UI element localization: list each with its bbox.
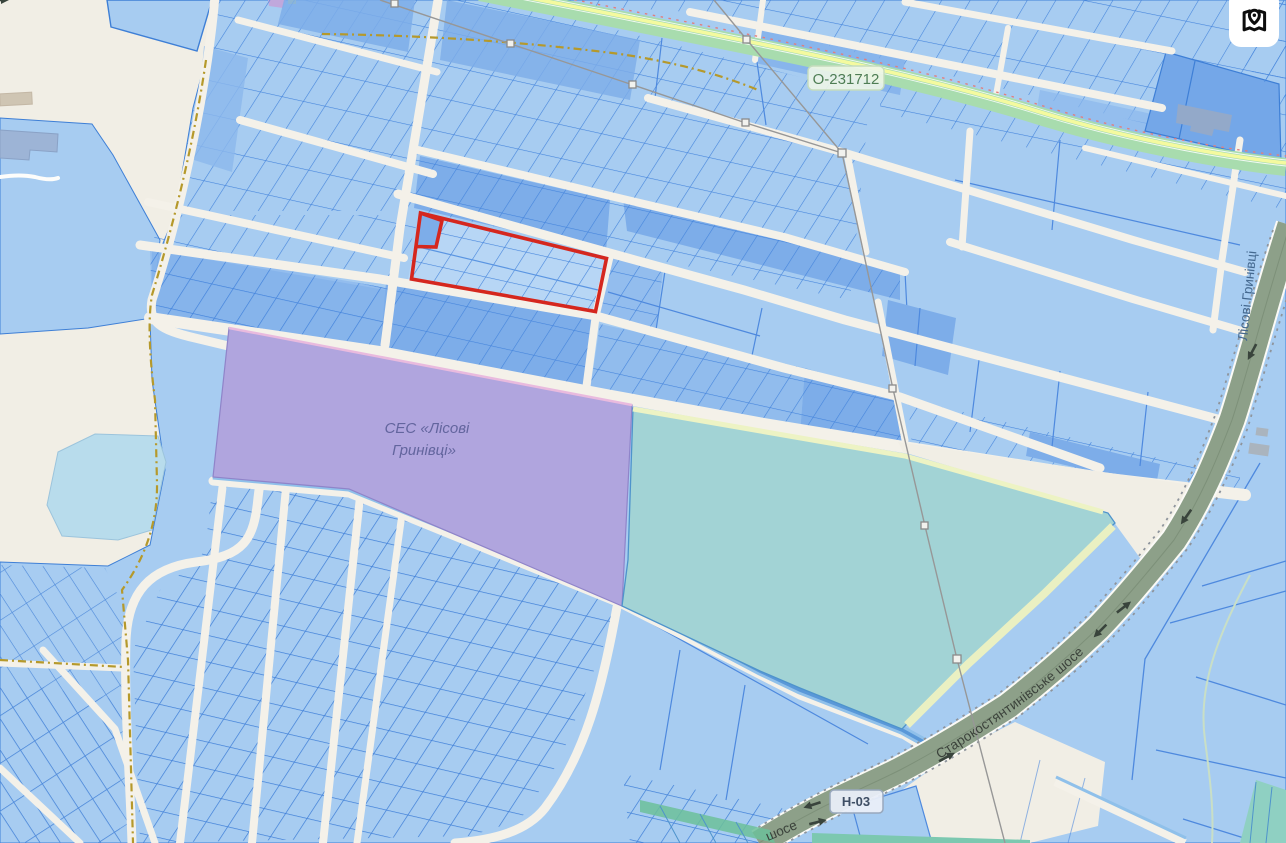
- svg-text:О-231712: О-231712: [813, 71, 880, 88]
- svg-text:Н-03: Н-03: [842, 794, 870, 809]
- svg-text:СЕС «Лісові: СЕС «Лісові: [385, 420, 470, 437]
- svg-text:Гринівці»: Гринівці»: [392, 442, 456, 459]
